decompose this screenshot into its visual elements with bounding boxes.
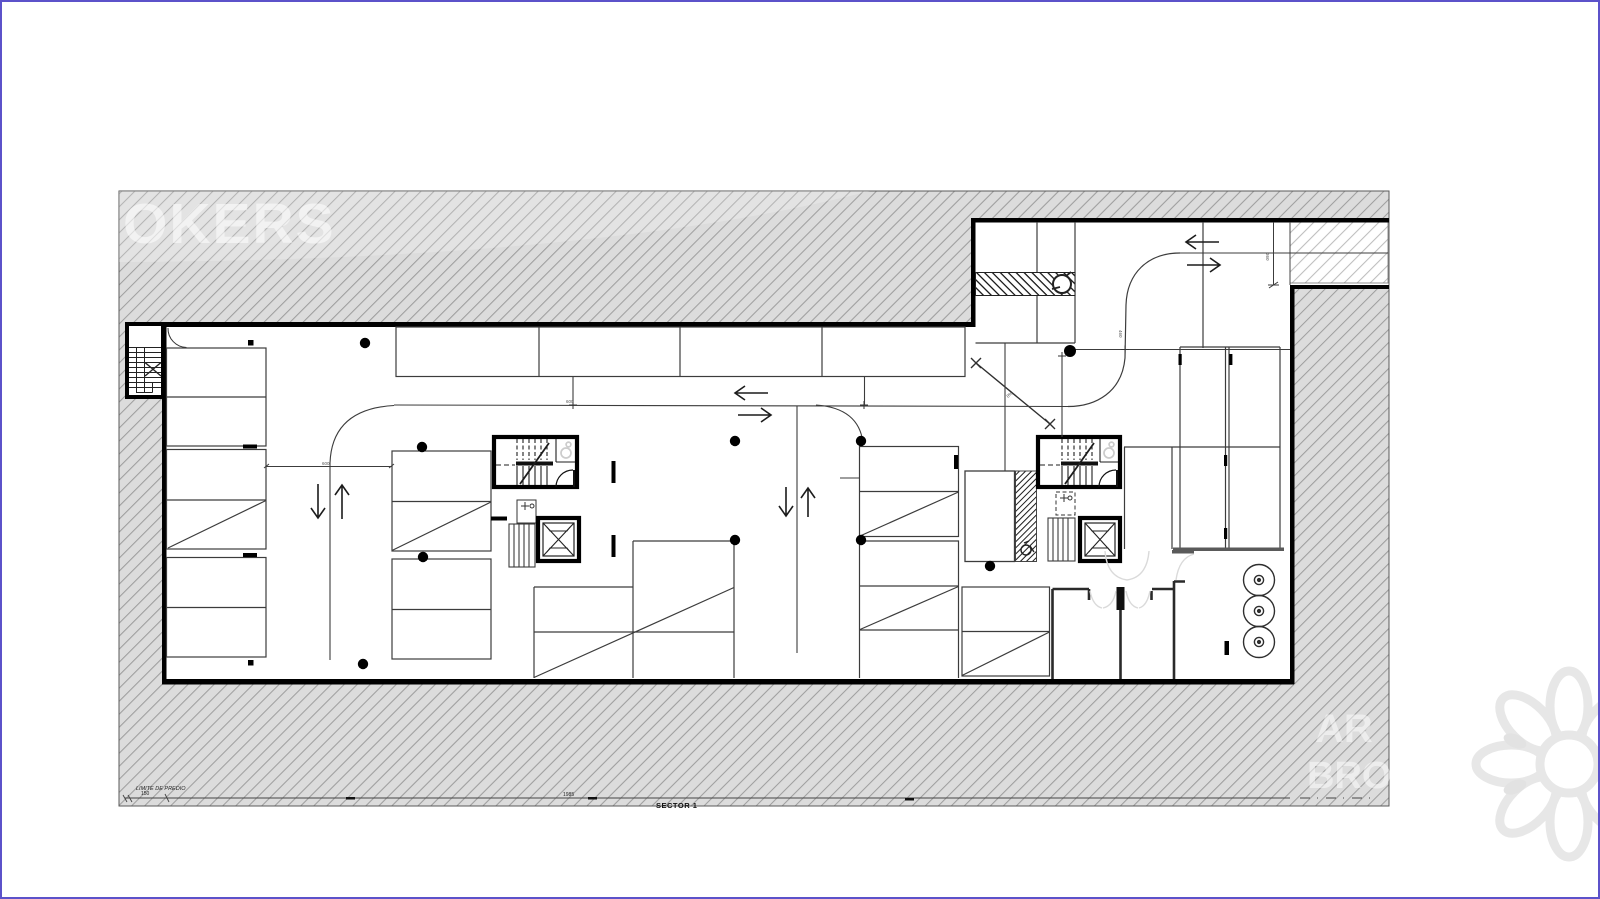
svg-text:BRO: BRO (1307, 755, 1391, 797)
svg-text:150: 150 (141, 791, 150, 797)
svg-text:AR: AR (1315, 707, 1373, 751)
svg-text:OKERS: OKERS (123, 192, 336, 256)
svg-text:SECTOR 1: SECTOR 1 (656, 801, 697, 810)
svg-text:360: 360 (1265, 253, 1270, 261)
svg-text:600: 600 (566, 399, 574, 404)
svg-text:600: 600 (322, 461, 330, 466)
svg-text:1985: 1985 (563, 792, 574, 798)
svg-text:460: 460 (1118, 330, 1123, 338)
